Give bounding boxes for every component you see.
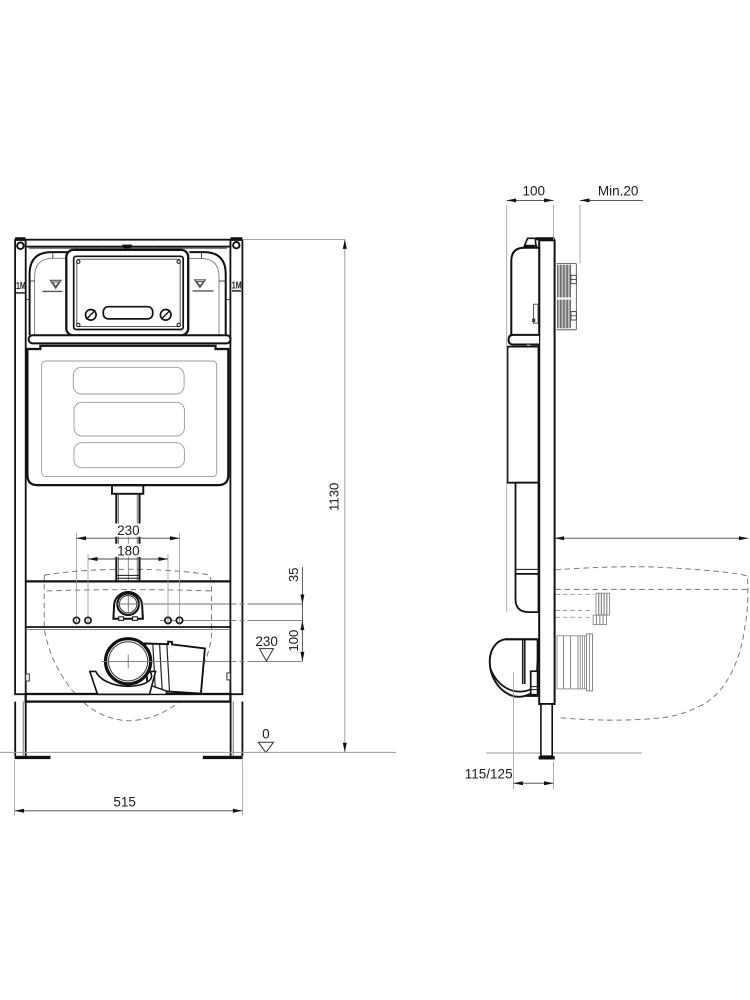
svg-text:35: 35 [286,567,301,582]
svg-text:100: 100 [523,183,546,198]
svg-text:180: 180 [117,543,140,558]
svg-text:1M: 1M [16,281,26,292]
svg-text:230: 230 [255,634,278,649]
svg-text:230: 230 [117,523,140,538]
svg-text:1M: 1M [232,281,242,292]
svg-text:115/125: 115/125 [465,766,513,781]
svg-text:100: 100 [286,630,301,652]
svg-text:0: 0 [262,727,270,742]
svg-text:1130: 1130 [326,483,341,511]
svg-text:Min.20: Min.20 [598,183,639,198]
svg-text:515: 515 [113,795,136,810]
